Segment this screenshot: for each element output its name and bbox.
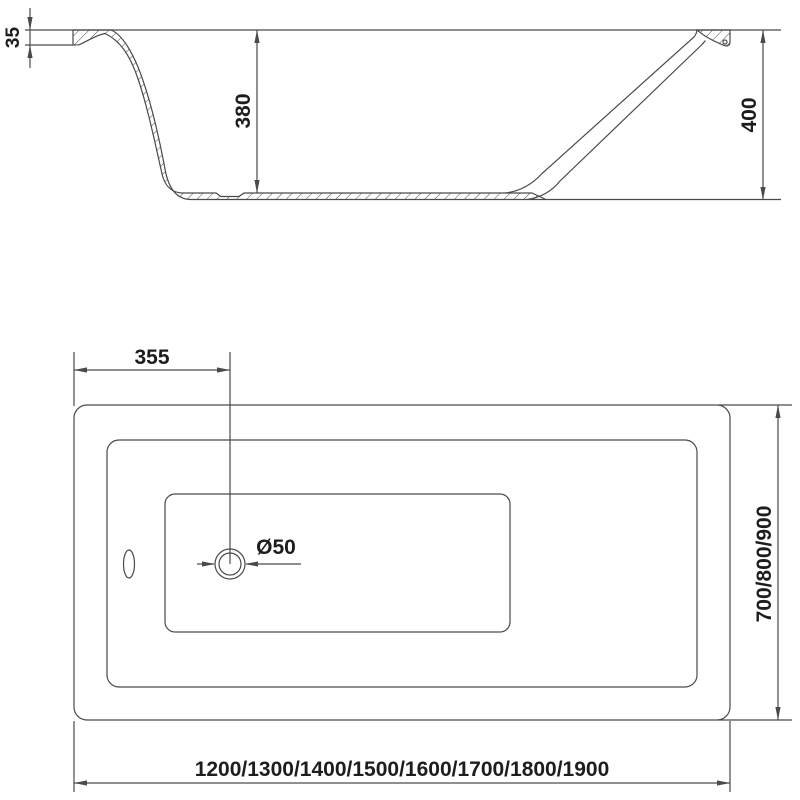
back-slope-inner-line (505, 30, 697, 193)
arrowhead-up (775, 405, 780, 418)
dim-label-inner-depth: 380 (232, 93, 255, 128)
arrowhead-left (74, 780, 87, 785)
dim-label-rim-thickness: 35 (3, 27, 24, 49)
floor-edge (165, 494, 510, 632)
dim-label-width-options: 700/800/900 (753, 506, 776, 623)
back-slope-outer-line (527, 41, 706, 200)
arrowhead-up (27, 45, 32, 58)
dimension-rim-thickness: 35 (3, 8, 73, 68)
arrowhead-left (74, 367, 87, 372)
bathtub-technical-drawing: 35 380 400 355 (0, 0, 800, 800)
dimension-drain-offset: 355 (74, 346, 230, 564)
arrowhead-down (775, 707, 780, 720)
arrowhead-right (217, 367, 230, 372)
dimension-length-options: 1200/1300/1400/1500/1600/1700/1800/1900 (74, 721, 730, 792)
plan-view: 355 Ø50 1200/1300/1400/1500/1600/1700/18… (74, 346, 792, 792)
arrowhead-down (27, 17, 32, 30)
arrowhead-right (202, 561, 215, 566)
arrowhead-down (254, 180, 259, 193)
dim-label-length-options: 1200/1300/1400/1500/1600/1700/1800/1900 (195, 758, 610, 781)
dim-label-drain-diameter: Ø50 (256, 536, 296, 559)
tub-wall-section (73, 30, 546, 200)
dimension-width-options: 700/800/900 (718, 405, 792, 720)
side-view: 35 380 400 (3, 8, 781, 200)
dimension-inner-depth: 380 (232, 30, 260, 193)
arrowhead-down (760, 187, 765, 200)
overflow-hole (124, 550, 135, 578)
arrowhead-left (245, 561, 258, 566)
dim-label-total-height: 400 (738, 97, 761, 132)
dim-label-drain-offset: 355 (134, 346, 169, 369)
dimension-total-height: 400 (738, 30, 766, 200)
inner-rim-edge (107, 440, 697, 687)
outer-rim-edge (74, 405, 730, 720)
arrowhead-right (717, 780, 730, 785)
arrowhead-up (254, 30, 259, 43)
dimension-drain-diameter: Ø50 (197, 536, 301, 567)
arrowhead-up (760, 30, 765, 43)
